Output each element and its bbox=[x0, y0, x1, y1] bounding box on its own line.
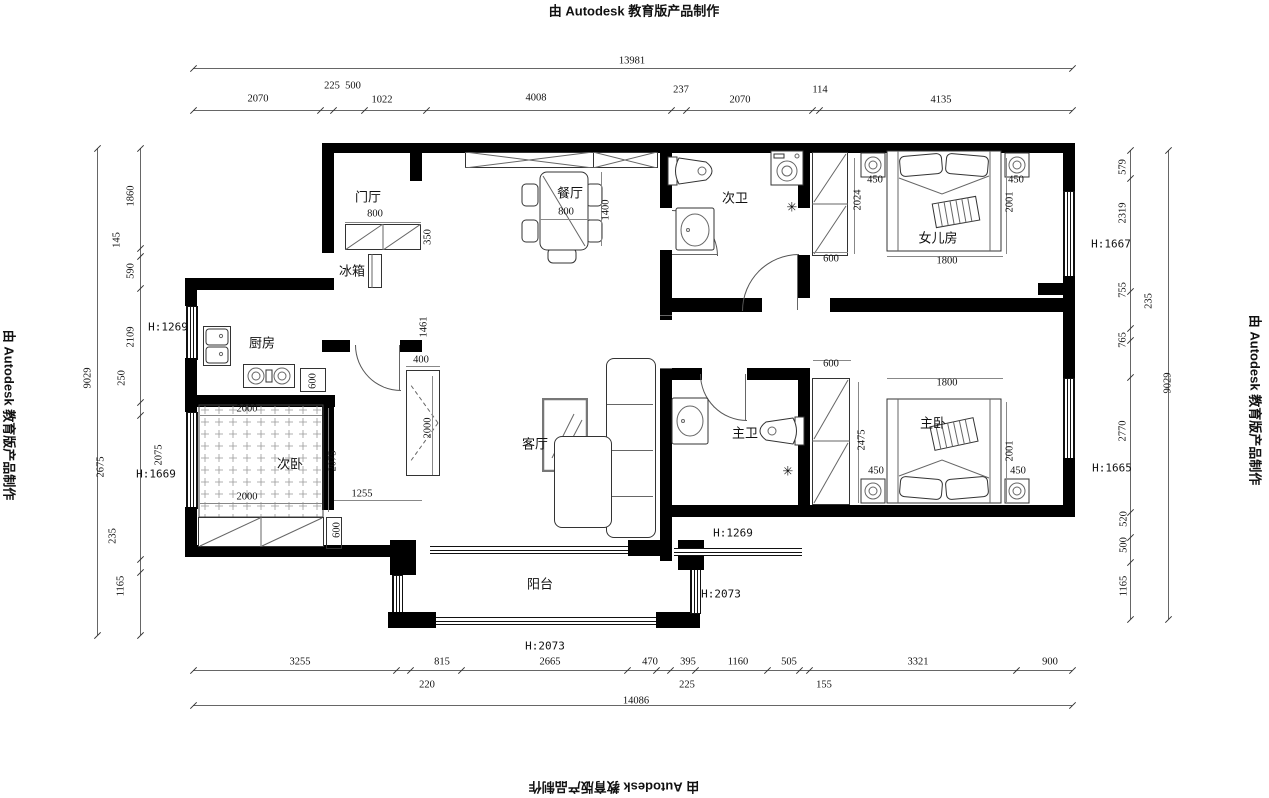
dim-tick bbox=[1069, 702, 1076, 709]
dim-label: 500 bbox=[1119, 537, 1130, 553]
dim-line bbox=[540, 219, 590, 220]
dim-label: 815 bbox=[434, 657, 450, 668]
dim-label: 2001 bbox=[1005, 441, 1016, 462]
dim-label-overall: 9029 bbox=[1163, 373, 1174, 394]
wall-segment bbox=[830, 298, 1075, 312]
dim-label: 2075 bbox=[154, 445, 165, 466]
kitchen-sink bbox=[203, 326, 231, 366]
dim-line bbox=[193, 110, 1072, 111]
window bbox=[392, 575, 403, 615]
bedroom-hall-door-leaf bbox=[797, 254, 798, 310]
dim-label: 4135 bbox=[931, 95, 952, 106]
master-sink bbox=[670, 396, 710, 446]
master-bath-door-leaf bbox=[745, 374, 746, 420]
dim-label: 4008 bbox=[526, 93, 547, 104]
dim-line bbox=[193, 670, 1072, 671]
dim-label: 235 bbox=[108, 528, 119, 544]
nightstand bbox=[860, 478, 886, 504]
dim-label: 220 bbox=[419, 680, 435, 691]
window bbox=[186, 412, 198, 509]
bath2-door-leaf bbox=[672, 254, 718, 255]
dim-line bbox=[345, 222, 421, 223]
dim-line bbox=[406, 366, 440, 367]
dim-label: 450 bbox=[1008, 175, 1024, 186]
wall-segment bbox=[1063, 153, 1075, 191]
room-label-bedroom2: 次卧 bbox=[277, 454, 303, 473]
wall-segment bbox=[747, 368, 810, 380]
room-label-balcony: 阳台 bbox=[527, 574, 553, 593]
dim-label: 800 bbox=[367, 209, 383, 220]
dim-line bbox=[334, 500, 422, 501]
master-wardrobe bbox=[812, 378, 850, 505]
bath2-sink bbox=[674, 206, 716, 252]
sofa-back bbox=[606, 358, 656, 538]
dim-label: 579 bbox=[1118, 159, 1129, 175]
dim-label: 600 bbox=[823, 254, 839, 265]
room-label-kitchen: 厨房 bbox=[249, 333, 275, 352]
wall-segment bbox=[1063, 310, 1075, 378]
dim-label: 470 bbox=[642, 657, 658, 668]
bedroom2-wardrobe bbox=[198, 517, 324, 547]
wall-segment bbox=[410, 153, 422, 181]
window bbox=[1063, 191, 1075, 278]
room-label-living: 客厅 bbox=[522, 434, 548, 453]
daughter-wardrobe bbox=[812, 152, 848, 256]
dim-label: 237 bbox=[673, 85, 689, 96]
floorplan-canvas: 由 Autodesk 教育版产品制作 由 Autodesk 教育版产品制作 由 … bbox=[0, 0, 1269, 798]
dim-label: 600 bbox=[308, 373, 319, 389]
dim-line bbox=[140, 148, 141, 635]
window bbox=[1063, 378, 1075, 460]
dim-label: 600 bbox=[823, 359, 839, 370]
dim-label: 2070 bbox=[730, 95, 751, 106]
master-toilet bbox=[750, 410, 806, 452]
dining-cabinet bbox=[465, 152, 658, 168]
room-label-fridge: 冰箱 bbox=[339, 261, 365, 280]
height-label-kitchen-window: H:1269 bbox=[148, 321, 188, 334]
shower-icon: ✳ bbox=[787, 201, 798, 216]
dim-label: 1022 bbox=[372, 95, 393, 106]
dim-label: 2000 bbox=[237, 404, 258, 415]
dim-label: 2075 bbox=[328, 451, 339, 472]
fridge bbox=[368, 254, 382, 288]
window bbox=[690, 568, 701, 614]
dim-label: 2000 bbox=[237, 492, 258, 503]
wall-segment bbox=[656, 612, 700, 628]
sofa-chaise bbox=[554, 436, 612, 528]
watermark-bottom: 由 Autodesk 教育版产品制作 bbox=[529, 779, 699, 798]
wall-segment bbox=[805, 505, 1075, 517]
height-label-daughter-window: H:1667 bbox=[1091, 238, 1131, 251]
dim-label: 2024 bbox=[853, 190, 864, 211]
wall-segment bbox=[322, 153, 334, 253]
height-label-master-window: H:1665 bbox=[1092, 462, 1132, 475]
wall-segment bbox=[322, 143, 418, 153]
wall-segment bbox=[660, 250, 672, 310]
room-label-master-bedroom: 主卧 bbox=[920, 413, 946, 432]
sofa-divider bbox=[607, 450, 653, 451]
dim-label: 2675 bbox=[96, 457, 107, 478]
nightstand bbox=[1004, 478, 1030, 504]
dim-label-overall: 13981 bbox=[619, 56, 645, 67]
shower-icon: ✳ bbox=[783, 465, 794, 480]
dim-label: 3255 bbox=[290, 657, 311, 668]
stove bbox=[243, 364, 295, 388]
dim-label: 1800 bbox=[937, 256, 958, 267]
dim-label: 450 bbox=[868, 466, 884, 477]
dim-tick bbox=[137, 632, 144, 639]
dim-tick bbox=[94, 632, 101, 639]
dim-label: 590 bbox=[126, 263, 137, 279]
dim-tick bbox=[1069, 667, 1076, 674]
room-label-master-bath: 主卫 bbox=[732, 423, 758, 442]
dim-label: 500 bbox=[345, 81, 361, 92]
dim-label: 765 bbox=[1118, 332, 1129, 348]
dim-label: 505 bbox=[781, 657, 797, 668]
dim-label: 450 bbox=[867, 175, 883, 186]
dim-label: 1165 bbox=[1119, 576, 1130, 597]
dim-label: 3321 bbox=[908, 657, 929, 668]
dim-label: 350 bbox=[423, 229, 434, 245]
dim-label: 235 bbox=[1144, 293, 1155, 309]
dim-label: 2319 bbox=[1118, 203, 1129, 224]
height-label-hallway: H:1269 bbox=[713, 527, 753, 540]
dim-label: 400 bbox=[413, 355, 429, 366]
dim-line bbox=[97, 148, 98, 635]
wall-segment bbox=[322, 340, 350, 352]
dim-label: 395 bbox=[680, 657, 696, 668]
wall-segment bbox=[1038, 283, 1075, 295]
bath2-toilet bbox=[666, 152, 722, 190]
wall-segment bbox=[660, 517, 672, 561]
wall-segment bbox=[185, 358, 197, 412]
height-label-bedroom2-window: H:1669 bbox=[136, 468, 176, 481]
dim-label: 2770 bbox=[1118, 421, 1129, 442]
wall-segment bbox=[400, 340, 422, 352]
opening-line bbox=[660, 315, 672, 316]
dim-label: 755 bbox=[1118, 282, 1129, 298]
wall-segment bbox=[197, 278, 334, 290]
dim-label: 1400 bbox=[601, 200, 612, 221]
dim-tick bbox=[1127, 616, 1134, 623]
dim-label: 114 bbox=[812, 85, 827, 96]
dim-label-overall: 9029 bbox=[83, 368, 94, 389]
room-label-foyer: 门厅 bbox=[355, 187, 381, 206]
window bbox=[674, 548, 802, 556]
room-label-bath2: 次卫 bbox=[722, 188, 748, 207]
dim-label: 1160 bbox=[728, 657, 749, 668]
wall-segment bbox=[798, 255, 810, 298]
dim-label: 250 bbox=[117, 370, 128, 386]
opening-line bbox=[660, 368, 672, 369]
kitchen-door-arc bbox=[355, 345, 401, 391]
dim-label: 225 bbox=[324, 81, 340, 92]
dim-label: 450 bbox=[1010, 466, 1026, 477]
dim-line bbox=[200, 503, 322, 504]
dim-line bbox=[1130, 150, 1131, 619]
dim-line bbox=[200, 415, 322, 416]
wall-segment bbox=[388, 612, 436, 628]
dim-tick bbox=[1069, 65, 1076, 72]
dim-label-overall: 14086 bbox=[623, 696, 649, 707]
dim-label: 800 bbox=[558, 207, 574, 218]
height-label-balcony-right: H:2073 bbox=[701, 588, 741, 601]
wall-segment bbox=[672, 368, 702, 380]
wall-segment bbox=[660, 505, 810, 517]
wall-segment bbox=[185, 278, 197, 306]
bedroom2-bed bbox=[198, 404, 324, 518]
dim-label: 1860 bbox=[126, 186, 137, 207]
dim-label: 520 bbox=[1119, 511, 1130, 527]
sofa-divider bbox=[607, 496, 653, 497]
kitchen-door-leaf bbox=[399, 345, 400, 391]
dim-label: 1800 bbox=[937, 378, 958, 389]
sliding-door bbox=[430, 546, 628, 554]
bedroom-hall-door-arc bbox=[742, 254, 799, 311]
dim-line bbox=[193, 68, 1072, 69]
dim-label: 600 bbox=[332, 522, 343, 538]
dim-label: 2475 bbox=[857, 430, 868, 451]
sofa-divider bbox=[607, 404, 653, 405]
dim-label: 2001 bbox=[1005, 192, 1016, 213]
room-label-dining: 餐厅 bbox=[557, 183, 583, 202]
dim-label: 2070 bbox=[248, 94, 269, 105]
dim-label: 2665 bbox=[540, 657, 561, 668]
dim-label: 1255 bbox=[352, 489, 373, 500]
dim-label: 900 bbox=[1042, 657, 1058, 668]
dim-label: 155 bbox=[816, 680, 832, 691]
dim-tick bbox=[1165, 616, 1172, 623]
watermark-top: 由 Autodesk 教育版产品制作 bbox=[549, 1, 719, 20]
dim-label: 225 bbox=[679, 680, 695, 691]
dim-label: 145 bbox=[112, 232, 123, 248]
dim-label: 1461 bbox=[419, 317, 430, 338]
dim-label: 1165 bbox=[116, 576, 127, 597]
height-label-balcony-bottom: H:2073 bbox=[525, 640, 565, 653]
watermark-right: 由 Autodesk 教育版产品制作 bbox=[1247, 315, 1266, 485]
dim-tick bbox=[1069, 107, 1076, 114]
watermark-left: 由 Autodesk 教育版产品制作 bbox=[1, 330, 20, 500]
washing-machine bbox=[770, 150, 804, 186]
room-label-daughter-room: 女儿房 bbox=[918, 228, 957, 247]
wall-segment bbox=[390, 540, 416, 575]
foyer-cabinet bbox=[345, 224, 421, 250]
dim-label: 2000 bbox=[423, 418, 434, 439]
dim-label: 2109 bbox=[126, 327, 137, 348]
window bbox=[436, 617, 658, 625]
